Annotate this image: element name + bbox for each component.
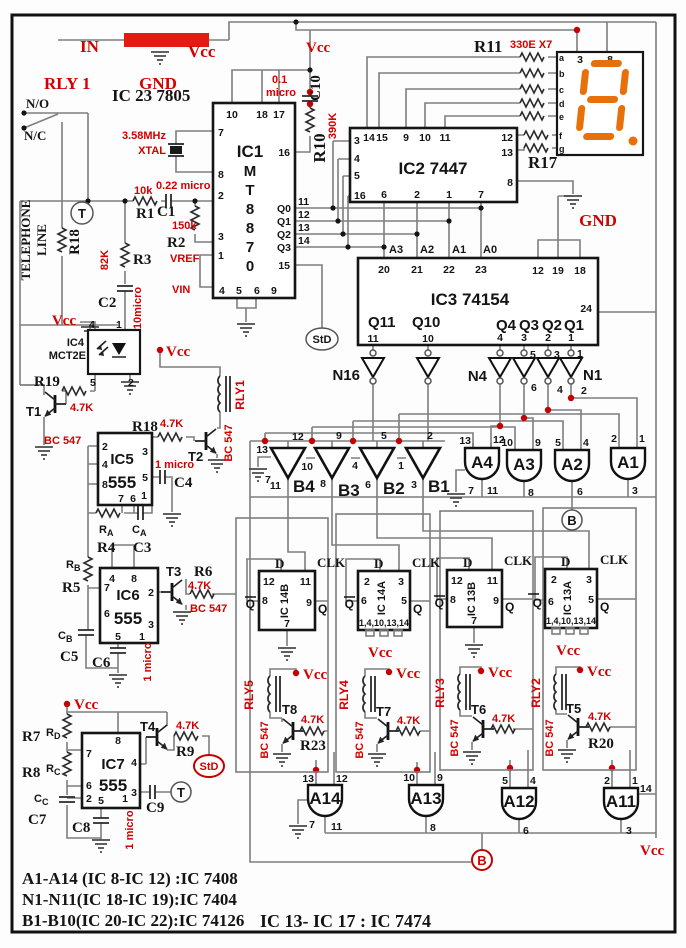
b4-pin11: 11	[270, 480, 281, 492]
label-01: 0.1	[272, 74, 287, 86]
ic4-vcc: Vcc	[52, 313, 76, 329]
ic1-ch-0: 0	[246, 258, 254, 275]
ic1-pin15: 15	[278, 260, 290, 272]
label-gate-a11: A11	[606, 792, 636, 811]
label-r8: R8	[22, 765, 40, 781]
ff4-powerpins: 1,4,10,13,14	[546, 616, 596, 626]
ic7-name: IC7	[101, 756, 124, 773]
label-t5: T5	[566, 701, 581, 716]
rly3-47k: 4.7K	[492, 713, 515, 725]
label-t4: T4	[140, 719, 156, 734]
ic7-pin5: 5	[98, 795, 104, 807]
label-rly3: RLY3	[433, 678, 447, 708]
label-330e-x7: 330E X7	[510, 39, 552, 51]
a11-pin3: 3	[626, 825, 632, 837]
r19-47k: 4.7K	[70, 402, 93, 414]
ff4-pin5: 5	[588, 594, 594, 606]
ff4-q: Q	[600, 600, 609, 614]
ic3-name: IC3 74154	[431, 290, 510, 309]
label-10k: 10k	[134, 185, 153, 197]
ic6-pin1: 1	[139, 631, 145, 643]
inv-pin4: 4	[557, 384, 563, 396]
legend: A1-A14 (IC 8-IC 12) :IC 7408 N1-N11(IC 1…	[22, 869, 431, 931]
rly3-vcc: Vcc	[488, 665, 512, 681]
ic6-pin8: 8	[131, 573, 137, 585]
label-r1: R1	[136, 206, 154, 222]
a4-pin11: 11	[487, 485, 498, 497]
ic2-pin7: 7	[478, 189, 484, 201]
a11-pin2: 2	[604, 775, 610, 787]
relay-rly4-driver: RLY4 Vcc T7 4.7K BC 547	[337, 666, 420, 759]
label-node-b-bottom: B	[477, 853, 486, 868]
label-c1: C1	[157, 204, 175, 220]
label-rc-base: R	[46, 763, 54, 775]
label-rb-base: R	[66, 559, 74, 571]
ic6-555-label: 555	[114, 609, 142, 628]
inv-pin1: 1	[577, 348, 583, 360]
label-cc-base: C	[34, 793, 42, 805]
a3-pin9: 9	[535, 437, 541, 449]
ic7-pin4: 4	[131, 757, 137, 769]
ic6-555: RB R5 IC6 555 4 8 7 6 2 3 5 1 T3 R6 4.7K…	[58, 557, 227, 682]
ic2-pin8: 8	[507, 177, 513, 189]
ic4-type: MCT2E	[49, 350, 86, 362]
b4-pin12: 12	[292, 431, 304, 443]
ic3-74154: IC3 74154 A3 A2 A1 A0 20 21 22 23 12 19 …	[358, 244, 598, 345]
ff2-vcc: Vcc	[368, 645, 392, 661]
label-t6: T6	[471, 702, 486, 717]
label-r20: R20	[588, 736, 614, 752]
label-r7: R7	[22, 729, 41, 745]
ff1-d: D	[275, 556, 284, 571]
ic2-pin6: 6	[381, 189, 387, 201]
label-vcc-top: Vcc	[306, 40, 330, 56]
ic7-vcc: Vcc	[74, 697, 98, 713]
a11-pin14: 14	[640, 783, 652, 795]
ic7-555: Vcc R7 RD R8 RC IC7 555 7 6 2 8 4 3 5 1 …	[22, 697, 224, 850]
seven-segment-display: 3 8 a b c d e f g	[557, 52, 643, 155]
ff4-clk: CLK	[600, 552, 629, 567]
label-r5: R5	[62, 580, 80, 596]
a11-pin1: 1	[632, 775, 638, 787]
b1-pin2: 2	[427, 430, 433, 442]
seg-d-label: d	[559, 99, 565, 109]
flipflop-ic13b: D CLK 12 11 8 9 7 IC 13B Q Q	[434, 553, 533, 627]
label-t3: T3	[166, 564, 181, 579]
ff2-qbar: Q	[345, 597, 354, 611]
rly4-vcc: Vcc	[396, 666, 420, 682]
ic1-pin14: 14	[298, 235, 310, 247]
ic3-pin19: 19	[552, 265, 564, 277]
ic6-pin6: 6	[104, 608, 110, 620]
ic3-pin22: 22	[443, 264, 455, 276]
rly2-vcc: Vcc	[587, 664, 611, 680]
legend-line-1: A1-A14 (IC 8-IC 12) :IC 7408	[22, 869, 238, 888]
label-micro: micro	[266, 87, 296, 99]
ic7-pin8: 8	[115, 735, 121, 747]
ff2-pin2: 2	[364, 576, 370, 588]
ic1-ch-m: M	[244, 163, 257, 180]
label-b3: B3	[338, 481, 360, 500]
label-gate-a4: A4	[471, 453, 493, 472]
ff1-pin9: 9	[306, 597, 312, 609]
label-r2: R2	[167, 235, 185, 251]
ic2-pin1: 1	[446, 189, 452, 201]
ic1-pin11: 11	[298, 196, 309, 208]
a1-pin3: 3	[632, 485, 638, 497]
ic1-pin7: 7	[218, 127, 224, 139]
ic2-pin5: 5	[354, 170, 360, 182]
rly1-vcc: Vcc	[166, 344, 190, 360]
ic3-q10: Q10	[412, 314, 440, 331]
label-gnd-right: GND	[579, 211, 617, 230]
b3-pin9: 9	[336, 430, 342, 442]
ff4-pin3: 3	[586, 574, 592, 586]
label-in: IN	[80, 37, 100, 56]
label-ra-base: R	[99, 524, 107, 536]
label-390k: 390K	[327, 113, 339, 139]
inv-pin6: 6	[531, 382, 537, 394]
label-vcc-reg: Vcc	[188, 42, 216, 61]
ic1-pin3: 3	[218, 231, 224, 243]
label-c7: C7	[28, 812, 47, 828]
label-cc-sub: C	[42, 797, 49, 807]
label-gate-a2: A2	[561, 455, 583, 474]
t5-bc547: BC 547	[544, 719, 556, 756]
label-c4: C4	[174, 475, 193, 491]
legend-line-4: IC 13- IC 17 : IC 7474	[260, 911, 431, 931]
rly4-47k: 4.7K	[397, 715, 420, 727]
t3-bc547: BC 547	[190, 603, 227, 615]
ic1-ch-t: T	[245, 182, 254, 199]
label-vin: VIN	[172, 284, 190, 296]
seg-c-label: c	[559, 85, 564, 95]
t1-bc547: BC 547	[44, 435, 81, 447]
label-t-terminal-1: T	[78, 206, 86, 221]
ff1-pin8: 8	[262, 595, 268, 607]
label-r17: R17	[528, 153, 558, 172]
decimal-point	[629, 137, 638, 146]
a3-pin10: 10	[501, 437, 513, 449]
ff3-d: D	[463, 555, 472, 570]
label-cb-base: C	[58, 630, 66, 642]
ic5-pin6: 6	[130, 493, 136, 505]
inv-pin5: 5	[530, 349, 536, 361]
ic1-pin16: 16	[278, 147, 290, 159]
ic2-pin4: 4	[354, 153, 360, 165]
ic2-pin16: 16	[354, 190, 366, 202]
label-rly5: RLY5	[242, 680, 256, 710]
label-r23: R23	[300, 738, 326, 754]
ff3-name: IC 13B	[466, 582, 478, 616]
label-gate-a13: A13	[410, 789, 441, 808]
ff4-d: D	[561, 554, 570, 569]
power-input-section: IN Vcc GND IC 23 7805 RLY 1 N/O N/C TELE…	[18, 33, 216, 280]
label-gate-a1: A1	[617, 453, 639, 472]
ic2-pin9: 9	[403, 132, 409, 144]
ic2-pin15: 15	[376, 132, 388, 144]
r9-47k: 4.7K	[176, 720, 199, 732]
label-rly1: RLY1	[233, 380, 247, 410]
ff2-pin3: 3	[398, 576, 404, 588]
ic3-pin11: 11	[367, 333, 378, 345]
label-c8: C8	[72, 820, 90, 836]
ic2-pin10: 10	[419, 132, 431, 144]
ic4-mct2e: IC4 MCT2E Vcc 4 1 5 2 R19 4.7K T1 BC 547	[26, 313, 140, 447]
ic5-pin7: 7	[118, 493, 124, 505]
a2-pin5: 5	[555, 437, 561, 449]
label-t7: T7	[376, 704, 391, 719]
ic1-pin5: 5	[236, 285, 242, 297]
ic2-pin3: 3	[354, 135, 360, 147]
ic5-555: IC5 555 2 4 8 3 5 7 6 1 1 micro C4 RA CA…	[96, 433, 194, 556]
a13-pin8: 8	[430, 822, 436, 834]
label-std-2: StD	[200, 761, 219, 773]
label-r9: R9	[176, 744, 194, 760]
ic1-ch-8a: 8	[246, 201, 254, 218]
label-t1: T1	[26, 404, 41, 419]
ff1-pin12: 12	[263, 576, 275, 588]
label-c2: C2	[98, 295, 116, 311]
seg-g-label: g	[559, 144, 565, 154]
label-r4: R4	[97, 540, 116, 556]
flipflop-ic14b: D CLK 12 11 8 9 7 IC 14B Q Q	[245, 555, 346, 630]
ic6-name: IC6	[116, 587, 139, 604]
c4-1micro: 1 micro	[155, 459, 194, 471]
ic5-pin3: 3	[142, 446, 148, 458]
label-rly1-switch: RLY 1	[44, 74, 90, 93]
and-gate-bottom-row: A14 A13 A12 A11 13 12 7 11 10 9 8 5 4 6 …	[302, 772, 664, 870]
ic1-pin17: 17	[273, 109, 285, 121]
a13-pin10: 10	[403, 772, 415, 784]
circuit-canvas: IN Vcc GND IC 23 7805 RLY 1 N/O N/C TELE…	[0, 0, 686, 948]
label-r18-phone: R18	[67, 229, 83, 255]
label-ic23-7805: IC 23 7805	[112, 86, 190, 105]
label-t8: T8	[282, 702, 297, 717]
label-t-terminal-2: T	[177, 785, 185, 800]
ic1-name: IC1	[237, 142, 263, 161]
ff3-pin9: 9	[493, 595, 499, 607]
label-nc-contact: N/C	[24, 128, 46, 143]
ic7-pin6: 6	[86, 780, 92, 792]
ff2-name: IC 14A	[376, 581, 388, 615]
ff2-powerpins: 1,4,10,13,14	[359, 618, 409, 628]
label-b2: B2	[383, 479, 405, 498]
ic6-pin3: 3	[148, 619, 154, 631]
a14-pin11: 11	[331, 821, 342, 833]
ic5-pin1: 1	[141, 490, 147, 502]
ic1-q2: Q2	[277, 229, 291, 241]
label-rd-sub: D	[54, 731, 61, 741]
label-rd-base: R	[46, 727, 54, 739]
ff3-pin8: 8	[450, 594, 456, 606]
a4-pin13: 13	[459, 435, 471, 447]
ic3-pin2: 2	[545, 332, 551, 344]
ic1-pin13: 13	[298, 222, 310, 234]
ic1-q3: Q3	[277, 242, 291, 254]
label-gate-a3: A3	[513, 455, 535, 474]
and-gate-top-row: A4 A3 A2 A1 13 12 7 11 10 9 8 5 4 6 2 1 …	[459, 433, 645, 530]
ic3-q1: Q1	[564, 317, 584, 334]
ic6-pin4: 4	[109, 573, 115, 585]
b3-pin10: 10	[301, 461, 313, 473]
label-ca-sub: A	[140, 528, 147, 538]
ff1-name: IC 14B	[279, 584, 291, 618]
t8-bc547: BC 547	[259, 721, 271, 758]
ic4-pin2: 2	[128, 377, 134, 389]
ff1-q: Q	[318, 602, 327, 616]
ic3-pin4: 4	[497, 332, 503, 344]
label-b1: B1	[428, 477, 450, 496]
label-r11: R11	[474, 37, 502, 56]
rly5-47k: 4.7K	[301, 714, 324, 726]
ff3-qbar: Q	[435, 596, 444, 610]
label-no-contact: N/O	[26, 96, 49, 111]
ic7-pin2: 2	[86, 793, 92, 805]
rly2-47k: 4.7K	[588, 711, 611, 723]
a2-pin4: 4	[583, 437, 589, 449]
label-line: LINE	[34, 224, 49, 256]
label-n1: N1	[583, 367, 602, 384]
a1-pin2: 2	[611, 433, 617, 445]
ff4-pin2: 2	[551, 574, 557, 586]
ic2-pin12: 12	[501, 132, 513, 144]
ic2-pin2: 2	[414, 189, 420, 201]
legend-line-2: N1-N11(IC 18-IC 19):IC 7404	[22, 890, 237, 909]
ic1-pin1: 1	[218, 250, 224, 262]
ic3-pin3: 3	[521, 332, 527, 344]
flipflop-ic14a: D CLK 2 3 6 5 IC 14A 1,4,10,13,14 Vcc Q …	[344, 555, 441, 661]
ff3-q: Q	[505, 600, 514, 614]
relay-rly3-driver: RLY3 Vcc T6 4.7K BC 547	[433, 665, 515, 757]
label-150k: 150k	[172, 220, 197, 232]
ic3-pin24: 24	[580, 303, 592, 315]
seg-e-label: e	[559, 112, 564, 122]
ic1-pin4: 4	[219, 285, 225, 297]
label-a3: A3	[389, 244, 403, 256]
ic1-pin6: 6	[254, 285, 260, 297]
ff3-pin12: 12	[451, 575, 463, 587]
label-xtal: XTAL	[138, 145, 166, 157]
c6-1micro: 1 micro	[142, 642, 154, 681]
ic5-555-label: 555	[108, 473, 136, 492]
label-rly2: RLY2	[529, 678, 543, 708]
label-gate-a14: A14	[309, 789, 341, 808]
label-n16: N16	[332, 367, 360, 384]
ic3-pin20: 20	[378, 264, 390, 276]
label-r19: R19	[34, 374, 60, 390]
ff1-qbar: Q	[246, 597, 255, 611]
label-ca-base: C	[132, 524, 140, 536]
a1-pin1: 1	[639, 433, 645, 445]
ic3-pin12: 12	[532, 265, 544, 277]
ic3-pin10: 10	[422, 333, 434, 345]
ic1-pin9: 9	[271, 285, 277, 297]
t2-bc547: BC 547	[223, 424, 235, 461]
legend-line-3: B1-B10(IC 20-IC 22):IC 74126	[22, 911, 244, 930]
seg-b-label: b	[559, 69, 565, 79]
ff2-pin6: 6	[361, 595, 367, 607]
ic1-pin12: 12	[298, 209, 310, 221]
ic6-pin5: 5	[115, 631, 121, 643]
ic1-pin8: 8	[218, 169, 224, 181]
ic6-pin7: 7	[104, 582, 110, 594]
ff1-pin11: 11	[300, 576, 311, 588]
ic5-pin5: 5	[142, 472, 148, 484]
relay-rly2-driver: RLY2 Vcc T5 4.7K R20 BC 547	[529, 664, 614, 757]
a2-pin6: 6	[577, 486, 583, 498]
ff4-qbar: Q	[533, 596, 542, 610]
label-vcc-bottom-right: Vcc	[640, 843, 664, 859]
b3-pin8: 8	[320, 478, 326, 490]
a12-pin5: 5	[502, 775, 508, 787]
ff3-pin11: 11	[487, 575, 498, 587]
label-10micro: 10micro	[132, 287, 144, 329]
ic3-pin21: 21	[411, 264, 423, 276]
label-c9: C9	[146, 800, 164, 816]
ff2-clk: CLK	[412, 555, 441, 570]
ic1-pin18: 18	[256, 109, 268, 121]
a14-pin7: 7	[309, 819, 315, 831]
ff4-name: IC 13A	[562, 581, 574, 615]
t6-bc547: BC 547	[449, 719, 461, 756]
a3-pin8: 8	[528, 487, 534, 499]
label-rc-sub: C	[54, 767, 61, 777]
ic1-pin2: 2	[218, 190, 224, 202]
ic3-pin18: 18	[574, 265, 586, 277]
ic4-pin5: 5	[90, 377, 96, 389]
r18b-47k: 4.7K	[160, 418, 183, 430]
ic5-name: IC5	[110, 451, 133, 468]
label-a1: A1	[452, 244, 466, 256]
display-pin3: 3	[577, 54, 583, 66]
a12-pin4: 4	[530, 775, 536, 787]
label-c10: C10	[308, 75, 324, 101]
label-telephone: TELEPHONE	[18, 200, 33, 281]
ic1-ch-8b: 8	[246, 220, 254, 237]
ic3-pin23: 23	[475, 264, 487, 276]
label-rb-sub: B	[74, 563, 81, 573]
b1-pin3: 3	[411, 479, 417, 491]
b4-pin13: 13	[256, 444, 268, 456]
ff1-clk: CLK	[317, 555, 346, 570]
ic3-pin1: 1	[568, 332, 574, 344]
ff2-q: Q	[413, 602, 422, 616]
label-82k: 82K	[99, 250, 111, 270]
ic7-pin1: 1	[122, 793, 128, 805]
crystal-body	[170, 146, 182, 154]
label-r6: R6	[194, 564, 213, 580]
ic2-name: IC2 7447	[399, 159, 468, 178]
b2-pin5: 5	[381, 430, 387, 442]
ic5-pin8: 8	[102, 479, 108, 491]
label-c5: C5	[60, 649, 78, 665]
ic1-q1: Q1	[277, 216, 291, 228]
a14-pin13: 13	[302, 773, 314, 785]
ic3-q11: Q11	[368, 314, 396, 331]
ff3-clk: CLK	[504, 553, 533, 568]
ic4-pin1: 1	[116, 319, 122, 331]
label-std-1: StD	[313, 334, 332, 346]
relay-rly5-driver: RLY5 Vcc T8 4.7K R23 BC 547	[242, 667, 327, 759]
ic4-pin4: 4	[89, 319, 95, 331]
ff4-pin6: 6	[548, 596, 554, 608]
ic1-q0: Q0	[277, 203, 291, 215]
ic1-ch-7: 7	[246, 239, 254, 256]
inv-pin2: 2	[581, 385, 587, 397]
label-022micro: 0.22 micro	[156, 180, 211, 192]
label-a0: A0	[483, 244, 497, 256]
